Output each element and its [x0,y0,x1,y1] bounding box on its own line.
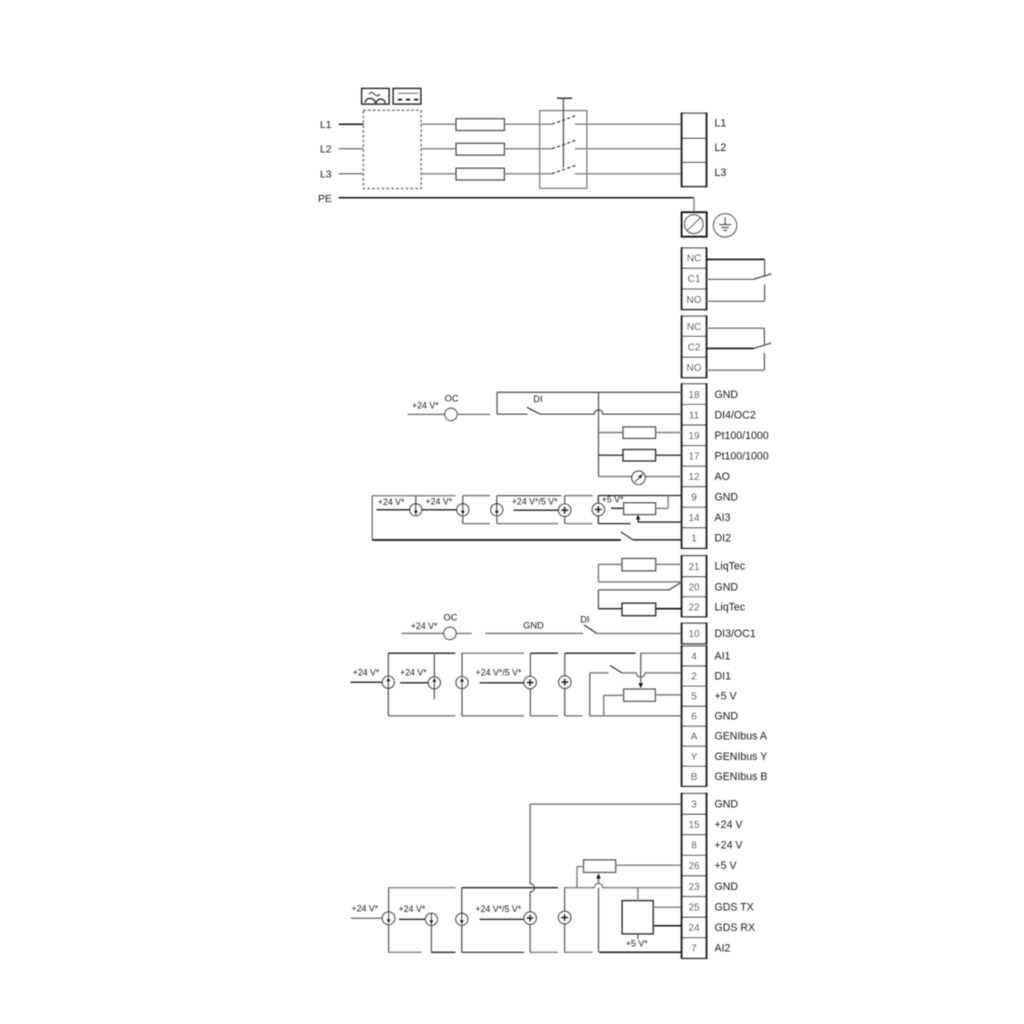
svg-text:GND: GND [715,492,739,504]
svg-text:+24 V*: +24 V* [426,497,453,507]
svg-text:AI1: AI1 [715,651,731,663]
svg-text:19: 19 [688,431,700,442]
svg-text:NO: NO [687,295,702,306]
svg-text:DI1: DI1 [715,671,732,683]
svg-text:GND: GND [715,389,739,401]
svg-text:Pt100/1000: Pt100/1000 [715,450,769,462]
svg-text:AI2: AI2 [715,943,731,955]
svg-text:10: 10 [688,629,700,640]
svg-text:NC: NC [687,322,701,333]
svg-text:B: B [691,772,698,783]
svg-text:OC: OC [443,613,457,623]
svg-text:GDS RX: GDS RX [715,922,756,934]
svg-text:12: 12 [688,472,700,483]
svg-text:+24 V*: +24 V* [411,621,438,631]
svg-text:15: 15 [688,820,700,831]
svg-text:20: 20 [688,582,700,593]
svg-text:9: 9 [691,493,697,504]
svg-text:C1: C1 [688,274,701,285]
svg-text:Pt100/1000: Pt100/1000 [715,430,769,442]
svg-text:+5 V*: +5 V* [602,495,624,505]
svg-text:+24 V*/5 V*: +24 V*/5 V* [512,497,558,507]
svg-text:+5 V*: +5 V* [626,938,648,948]
svg-text:GND: GND [715,711,739,723]
svg-text:22: 22 [688,602,700,613]
svg-text:DI: DI [580,614,589,624]
svg-text:+24 V*: +24 V* [399,904,426,914]
svg-text:GENIbus A: GENIbus A [715,731,768,743]
svg-text:17: 17 [688,451,700,462]
svg-text:+24 V*/5 V*: +24 V*/5 V* [476,668,522,678]
svg-text:NO: NO [687,363,702,374]
svg-text:LiqTec: LiqTec [715,561,746,573]
svg-text:L3: L3 [715,167,727,179]
svg-text:2: 2 [691,672,697,683]
svg-text:5: 5 [691,692,697,703]
svg-text:14: 14 [688,513,700,524]
svg-text:3: 3 [691,799,697,810]
svg-text:18: 18 [688,390,700,401]
svg-text:+24 V*/5 V*: +24 V*/5 V* [475,904,521,914]
svg-text:DI: DI [533,394,542,404]
svg-text:NC: NC [687,254,701,265]
svg-text:GND: GND [523,620,544,630]
svg-text:GND: GND [715,881,739,893]
svg-text:AO: AO [715,471,730,483]
svg-text:LiqTec: LiqTec [715,601,746,613]
svg-text:L2: L2 [320,145,332,156]
svg-text:+5 V: +5 V [715,860,738,872]
svg-text:GDS TX: GDS TX [715,901,754,913]
svg-text:23: 23 [688,882,700,893]
svg-text:7: 7 [691,944,697,955]
svg-text:+24 V*: +24 V* [412,400,439,410]
svg-text:+24 V: +24 V [715,819,744,831]
svg-text:Y: Y [691,752,698,763]
svg-text:L1: L1 [320,120,332,131]
svg-text:6: 6 [691,712,697,723]
svg-text:GENIbus B: GENIbus B [715,771,768,783]
svg-text:26: 26 [688,861,700,872]
svg-text:DI4/OC2: DI4/OC2 [715,409,756,421]
svg-text:1: 1 [691,534,697,545]
svg-text:+24 V: +24 V [715,840,744,852]
svg-text:DI2: DI2 [715,533,732,545]
svg-text:GND: GND [715,581,739,593]
svg-text:4: 4 [691,652,697,663]
svg-text:21: 21 [688,562,700,573]
svg-text:A: A [691,732,698,743]
svg-text:24: 24 [688,923,700,934]
svg-text:L2: L2 [715,142,727,154]
svg-text:PE: PE [318,194,332,205]
svg-text:C2: C2 [688,342,701,353]
svg-text:GENIbus Y: GENIbus Y [715,751,768,763]
svg-text:L1: L1 [715,118,727,130]
svg-text:+24 V*: +24 V* [400,668,427,678]
svg-text:25: 25 [688,902,700,913]
svg-text:L3: L3 [320,170,332,181]
svg-text:AI3: AI3 [715,512,731,524]
svg-text:8: 8 [691,841,697,852]
svg-text:+24 V*: +24 V* [352,904,379,914]
svg-text:DI3/OC1: DI3/OC1 [715,628,756,640]
svg-text:+24 V*: +24 V* [378,497,405,507]
svg-text:11: 11 [689,410,700,421]
svg-text:GND: GND [715,798,739,810]
svg-text:+24 V*: +24 V* [353,668,380,678]
svg-text:+5 V: +5 V [715,691,738,703]
svg-text:OC: OC [445,394,459,404]
